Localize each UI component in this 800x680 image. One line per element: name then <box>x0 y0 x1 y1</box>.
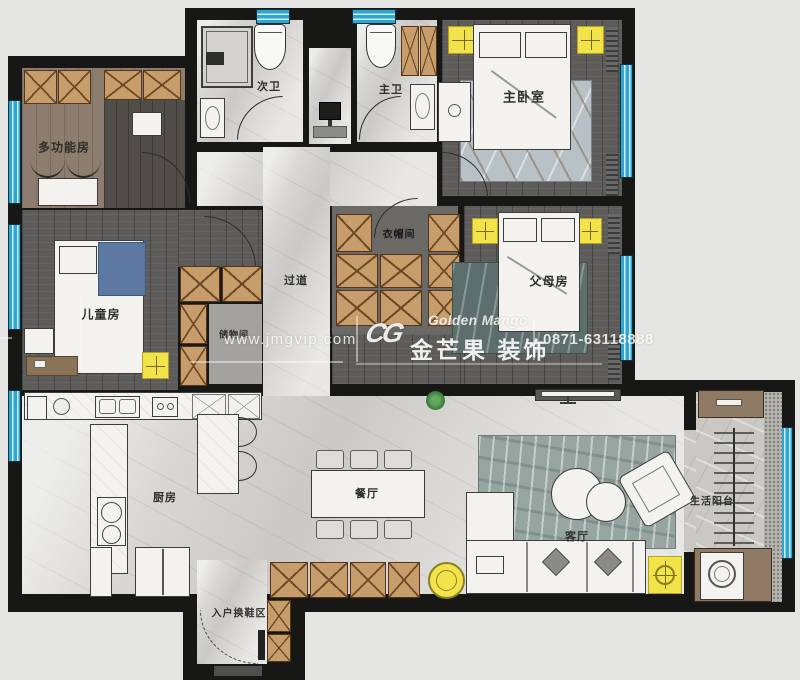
cabinet-cell <box>104 70 142 100</box>
shoe-cabinet-cell <box>270 562 308 598</box>
room-label-cloakroom: 衣帽间 <box>383 226 416 241</box>
watermark-line-left <box>0 337 12 339</box>
room-label-children-room: 儿童房 <box>81 306 120 323</box>
dining-chair <box>350 450 378 469</box>
entry-door-slab <box>214 666 262 676</box>
cabinet-cell <box>143 70 181 100</box>
bowl-icon <box>53 398 70 415</box>
pillow <box>525 32 567 58</box>
curtain <box>606 154 618 196</box>
sink-basin <box>99 399 116 414</box>
wardrobe-cell <box>336 254 378 288</box>
cabinet-handle <box>716 399 742 406</box>
pillow <box>541 218 575 242</box>
window-top-second-bath <box>256 9 290 24</box>
shoe-cabinet-cell <box>267 600 291 632</box>
ceiling-light <box>472 218 498 244</box>
entry-door-leaf <box>258 630 265 660</box>
cabinet-cell <box>420 26 437 76</box>
shoe-cabinet-cell <box>350 562 386 598</box>
watermark-separator <box>356 316 358 362</box>
drying-rack-rungs <box>714 430 754 544</box>
cabinet-cell <box>180 346 207 386</box>
shoe-cabinet-cell <box>310 562 348 598</box>
washer-drum-inner <box>714 566 730 582</box>
bed-multi-function <box>38 178 98 206</box>
shower-head-icon <box>206 52 224 65</box>
desk-item <box>34 360 46 368</box>
section-mark <box>567 396 569 403</box>
counter-bottom <box>90 547 112 597</box>
room-label-parents-room: 父母房 <box>529 273 568 290</box>
watermark-brand-en: Golden Mango <box>428 313 528 328</box>
watermark-underline-mid <box>356 363 602 365</box>
dining-chair <box>384 520 412 539</box>
plant-icon <box>426 391 445 410</box>
room-label-master-bedroom: 主卧室 <box>503 87 545 106</box>
cabinet-cell <box>180 266 220 302</box>
watermark-url: www.jmgvip.com <box>224 331 357 348</box>
light-ring <box>655 565 675 585</box>
room-label-balcony: 生活阳台 <box>690 493 734 508</box>
watermark-underline-url <box>190 361 343 363</box>
knob-icon <box>167 403 174 410</box>
cabinet-cell <box>222 266 262 302</box>
watermark-brand-cn: 金芒果 装饰 <box>410 331 549 365</box>
cabinet-cell <box>58 70 91 104</box>
monitor-stand <box>328 120 332 126</box>
dining-chair <box>350 520 378 539</box>
wardrobe-cell <box>336 214 372 252</box>
fridge-door-line <box>162 549 164 595</box>
cabinet-cell <box>24 70 57 104</box>
dining-chair <box>316 520 344 539</box>
floor-plan: 多功能房 次卫 主卫 主卧室 衣帽间 父母房 儿童房 储物间 过道 厨房 餐厅 … <box>0 0 800 680</box>
shoe-cabinet-cell <box>267 634 291 662</box>
monitor-icon <box>319 102 341 120</box>
sofa-seat-line <box>526 542 528 592</box>
curtain <box>606 28 618 72</box>
room-label-dining: 餐厅 <box>355 485 379 501</box>
shoe-cabinet-cell <box>388 562 420 598</box>
knob-icon <box>157 403 164 410</box>
room-label-second-bath: 次卫 <box>257 78 281 94</box>
watermark-phone: 0871-63118888 <box>543 331 654 348</box>
pillow <box>479 32 521 58</box>
sofa-seat-line <box>586 542 588 592</box>
ceiling-light <box>142 352 169 379</box>
cabinet-cell <box>180 304 207 344</box>
watermark-logo: CG <box>362 318 404 349</box>
side-table <box>132 112 162 136</box>
lamp-icon <box>448 104 461 117</box>
pillow <box>59 246 97 274</box>
desk <box>313 126 347 138</box>
small-appliance <box>27 396 47 420</box>
nightstand <box>24 328 54 354</box>
window-children-left <box>8 224 21 330</box>
burner-icon <box>101 502 122 523</box>
window-top-master-bath <box>352 9 396 24</box>
kitchen-island <box>197 414 239 494</box>
room-label-corridor: 过道 <box>284 272 308 288</box>
curtain <box>608 214 620 254</box>
sofa-arm-line <box>632 542 634 592</box>
watermark-separator <box>533 320 535 360</box>
room-label-living: 客厅 <box>565 528 589 544</box>
pillow <box>503 218 537 242</box>
watermark-separator <box>80 298 82 368</box>
chaise-pillow <box>476 556 504 574</box>
dining-chair <box>384 450 412 469</box>
window-master-right <box>620 64 633 178</box>
sink-basin <box>205 106 220 130</box>
sink-basin <box>119 399 136 414</box>
burner-icon <box>102 525 121 544</box>
blanket-blue <box>98 242 146 296</box>
room-label-multi-function: 多功能房 <box>38 139 90 156</box>
cooktop-appliance <box>152 397 178 417</box>
room-label-master-bath: 主卫 <box>379 81 403 97</box>
toilet <box>366 24 396 68</box>
cabinet-cell <box>401 26 419 76</box>
wardrobe-cell <box>428 214 460 252</box>
tv-icon <box>541 391 615 397</box>
coffee-table-round <box>586 482 626 522</box>
room-label-kitchen: 厨房 <box>153 489 177 505</box>
room-label-entry: 入户换鞋区 <box>212 605 267 620</box>
sink-basin <box>415 93 430 119</box>
dining-chair <box>316 450 344 469</box>
window-kitchen-left <box>8 390 21 462</box>
toilet <box>254 24 286 70</box>
ceiling-light <box>578 218 602 244</box>
window-multi-function-left <box>8 100 21 204</box>
ceiling-light <box>577 26 604 54</box>
wardrobe-cell <box>380 254 422 288</box>
ceiling-light-round <box>428 562 465 599</box>
